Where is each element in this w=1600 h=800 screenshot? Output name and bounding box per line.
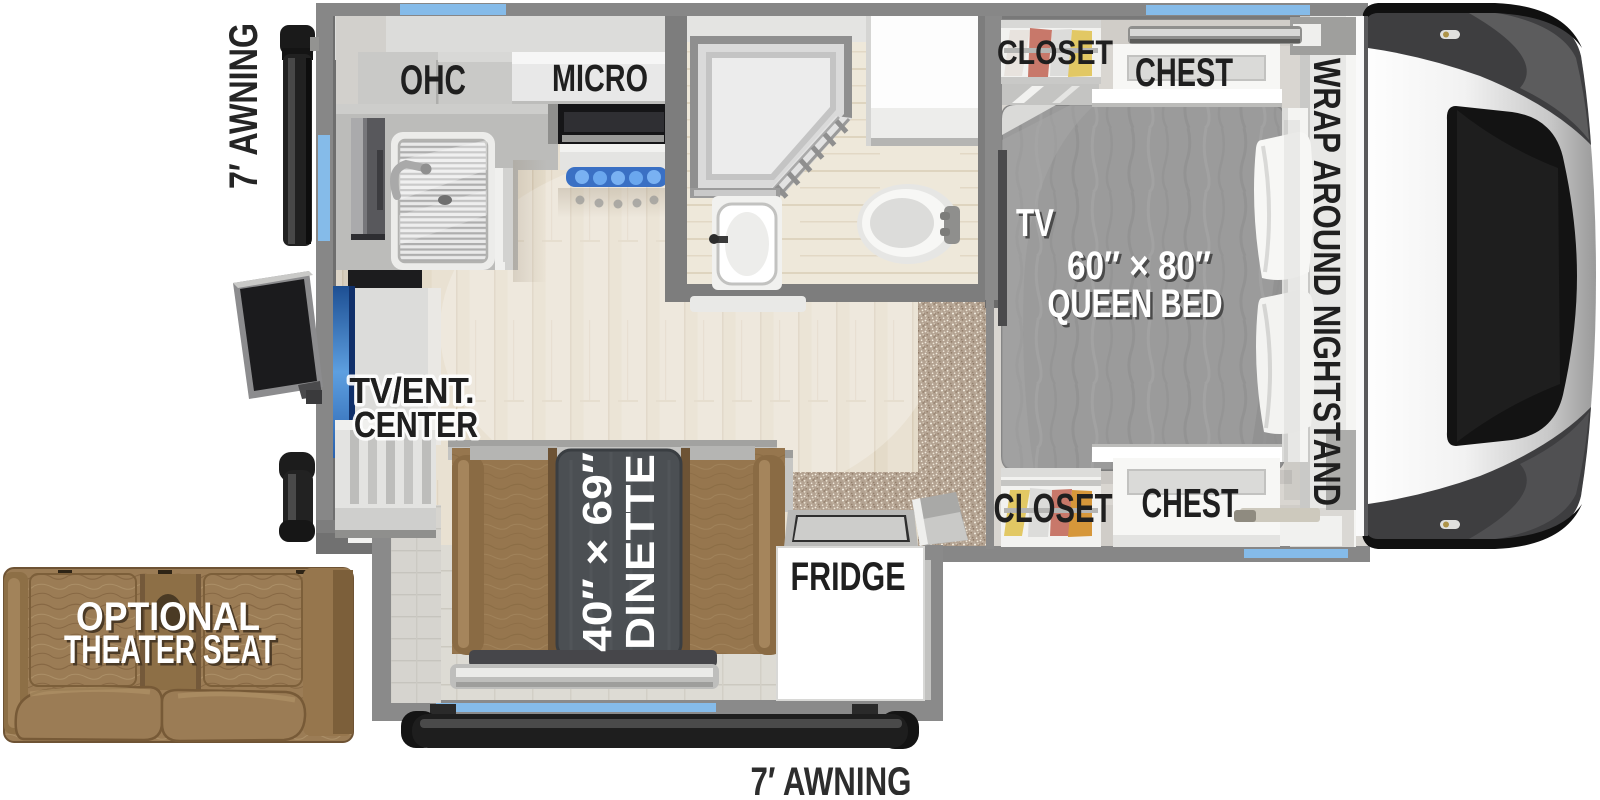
svg-text:WRAP AROUND NIGHTSTAND: WRAP AROUND NIGHTSTAND	[1305, 58, 1347, 506]
svg-text:MICRO: MICRO	[552, 58, 648, 100]
svg-text:THEATER SEAT: THEATER SEAT	[64, 628, 276, 672]
svg-text:OHC: OHC	[400, 56, 466, 103]
svg-text:7′ AWNING: 7′ AWNING	[222, 23, 266, 189]
svg-text:CLOSET: CLOSET	[997, 34, 1113, 72]
svg-text:QUEEN BED: QUEEN BED	[1048, 282, 1223, 326]
svg-text:CLOSET: CLOSET	[994, 485, 1113, 531]
svg-text:7′ AWNING: 7′ AWNING	[751, 760, 912, 795]
svg-text:CHEST: CHEST	[1142, 480, 1239, 526]
svg-text:DINETTE: DINETTE	[617, 454, 663, 650]
svg-text:FRIDGE: FRIDGE	[791, 555, 906, 599]
svg-text:CHEST: CHEST	[1135, 51, 1233, 95]
svg-text:40″ × 69″: 40″ × 69″	[574, 452, 620, 652]
svg-text:CENTER: CENTER	[354, 404, 478, 445]
svg-text:TV: TV	[1016, 202, 1054, 245]
